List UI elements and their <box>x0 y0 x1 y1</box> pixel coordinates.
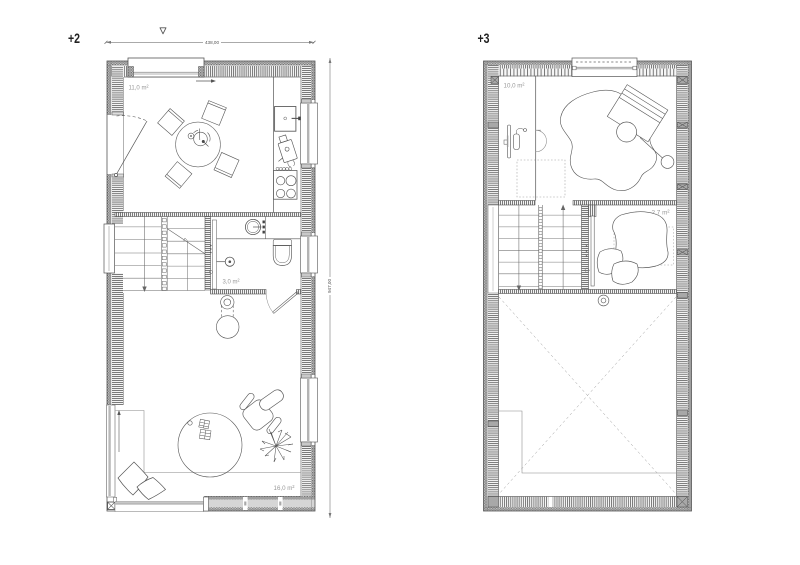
svg-text:10,0 m²: 10,0 m² <box>504 83 526 90</box>
svg-text:3,0 m²: 3,0 m² <box>223 279 241 286</box>
svg-text:438,00: 438,00 <box>205 40 219 45</box>
svg-text:947,00: 947,00 <box>327 279 332 293</box>
svg-text:+2: +2 <box>68 30 80 46</box>
svg-text:+3: +3 <box>478 30 490 46</box>
svg-text:16,0 m²: 16,0 m² <box>274 485 296 492</box>
svg-text:11,0 m²: 11,0 m² <box>129 85 150 92</box>
